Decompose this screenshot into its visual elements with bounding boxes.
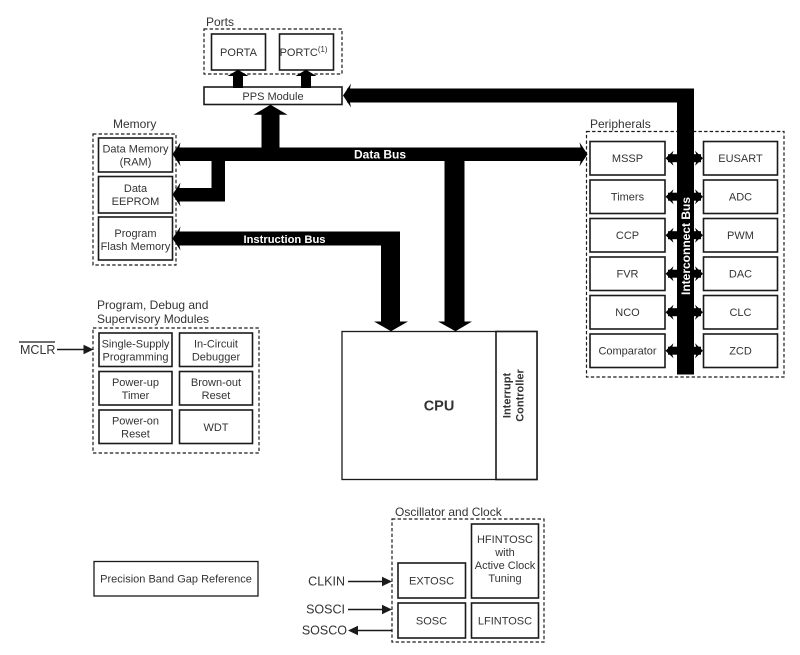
svg-text:Data Memory: Data Memory [102, 144, 169, 156]
svg-text:Interconnect Bus: Interconnect Bus [679, 197, 693, 295]
svg-text:Power-up: Power-up [112, 377, 159, 389]
svg-text:Program, Debug and: Program, Debug and [97, 298, 208, 312]
svg-text:EXTOSC: EXTOSC [409, 576, 454, 588]
svg-text:SOSCO: SOSCO [302, 624, 347, 638]
svg-text:LFINTOSC: LFINTOSC [478, 616, 532, 628]
svg-text:CPU: CPU [424, 399, 455, 415]
svg-text:SOSCI: SOSCI [306, 603, 345, 617]
svg-text:Timers: Timers [611, 192, 645, 204]
svg-text:DAC: DAC [729, 269, 752, 281]
svg-text:Memory: Memory [113, 117, 156, 131]
svg-text:Programming: Programming [102, 352, 168, 364]
svg-text:HFINTOSC: HFINTOSC [477, 534, 533, 546]
svg-text:Data: Data [124, 183, 148, 195]
svg-text:Timer: Timer [122, 390, 150, 402]
svg-text:MCLR: MCLR [20, 343, 55, 357]
svg-text:Instruction Bus: Instruction Bus [243, 234, 325, 246]
svg-text:Reset: Reset [202, 390, 231, 402]
svg-text:Data Bus: Data Bus [354, 148, 406, 162]
svg-text:ADC: ADC [729, 192, 752, 204]
svg-text:Peripherals: Peripherals [590, 117, 651, 131]
svg-text:Single-Supply: Single-Supply [102, 339, 170, 351]
svg-text:Debugger: Debugger [192, 352, 241, 364]
svg-text:PPS Module: PPS Module [242, 91, 303, 103]
svg-text:Supervisory Modules: Supervisory Modules [97, 312, 209, 326]
svg-text:EUSART: EUSART [718, 153, 763, 165]
svg-text:Power-on: Power-on [112, 416, 159, 428]
svg-text:with: with [494, 547, 515, 559]
svg-text:FVR: FVR [617, 269, 639, 281]
svg-text:Comparator: Comparator [598, 346, 656, 358]
svg-text:PWM: PWM [727, 230, 754, 242]
svg-text:Tuning: Tuning [488, 573, 521, 585]
svg-text:CLC: CLC [729, 307, 751, 319]
svg-text:Precision Band Gap Reference: Precision Band Gap Reference [100, 574, 252, 586]
svg-text:MSSP: MSSP [612, 153, 643, 165]
svg-text:EEPROM: EEPROM [112, 196, 160, 208]
svg-text:Oscillator and Clock: Oscillator and Clock [395, 505, 503, 519]
svg-text:Reset: Reset [121, 429, 150, 441]
svg-text:Program: Program [114, 228, 156, 240]
svg-text:Brown-out: Brown-out [191, 377, 241, 389]
svg-text:In-Circuit: In-Circuit [194, 339, 238, 351]
svg-text:PORTA: PORTA [220, 47, 258, 59]
svg-text:CCP: CCP [616, 230, 639, 242]
svg-text:Controller: Controller [515, 369, 527, 422]
svg-text:NCO: NCO [615, 307, 640, 319]
svg-text:WDT: WDT [203, 422, 228, 434]
svg-text:SOSC: SOSC [416, 616, 447, 628]
svg-text:(RAM): (RAM) [120, 157, 152, 169]
svg-text:ZCD: ZCD [729, 346, 752, 358]
svg-text:Active Clock: Active Clock [475, 560, 536, 572]
svg-text:Interrupt: Interrupt [502, 373, 514, 419]
svg-text:Flash Memory: Flash Memory [101, 241, 171, 253]
svg-text:CLKIN: CLKIN [308, 575, 345, 589]
svg-text:Ports: Ports [206, 15, 234, 29]
